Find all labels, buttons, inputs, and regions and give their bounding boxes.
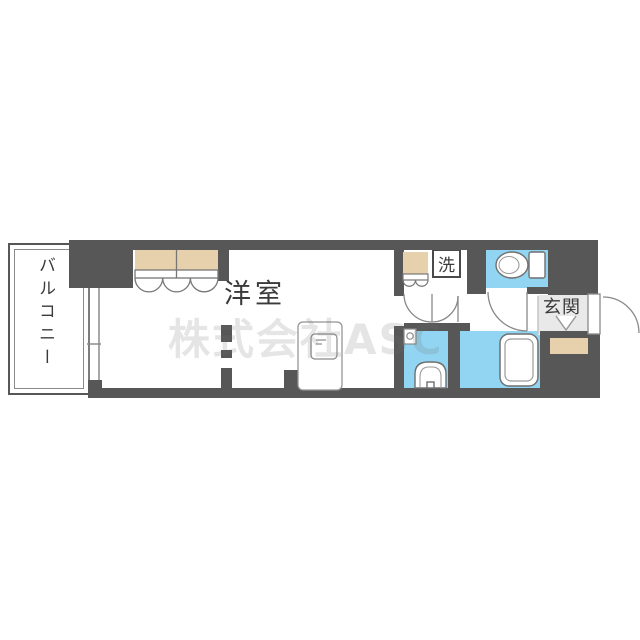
closet-folding-door-icon	[403, 274, 428, 286]
step-arrow-icon	[556, 316, 576, 330]
door-arc-icon	[404, 294, 458, 322]
balcony-label: バルコニー	[36, 256, 53, 388]
toilet-icon	[496, 252, 545, 278]
counter-box-icon	[404, 329, 416, 344]
room-label: 洋室	[224, 281, 286, 308]
window-icon	[87, 288, 101, 380]
fixtures-layer	[0, 0, 640, 640]
kitchen-counter-icon	[298, 322, 342, 390]
door-arc-icon	[488, 292, 527, 331]
washbasin-icon	[415, 362, 446, 388]
closet-folding-door-icon	[135, 250, 218, 292]
entrance-label: 玄関	[543, 299, 581, 317]
bathtub-icon	[500, 334, 538, 386]
floor-plan: バルコニー 洋室 玄関 洗 株式会社ASC	[0, 0, 640, 640]
